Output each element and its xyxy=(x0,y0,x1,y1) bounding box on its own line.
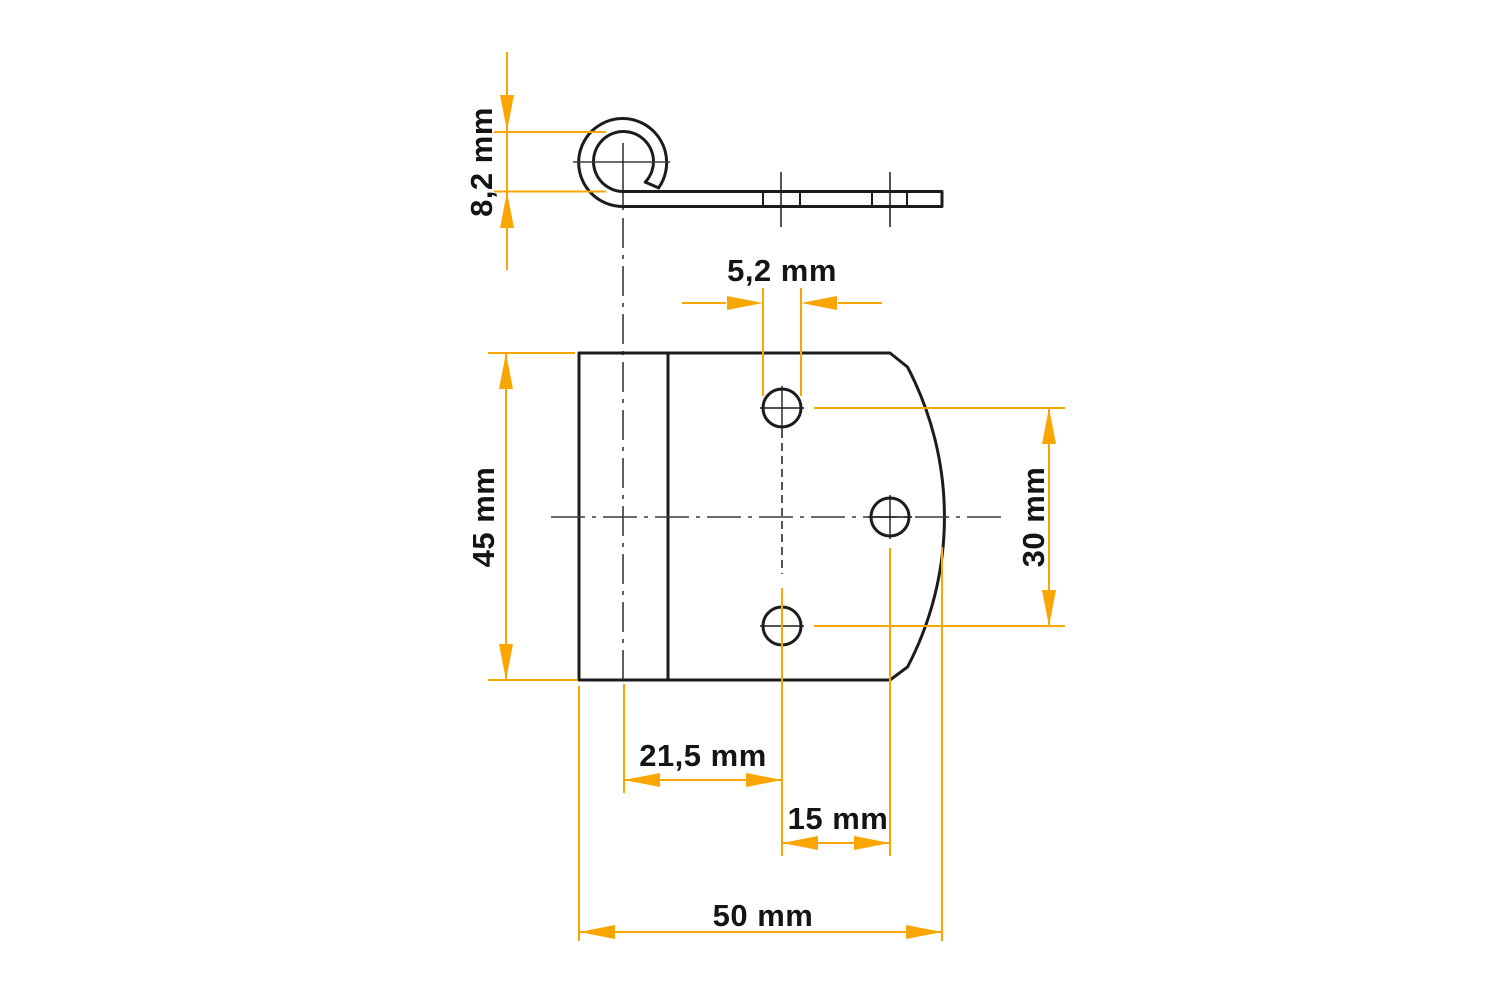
dim-label-5-2: 5,2 mm xyxy=(727,253,837,288)
side-profile-view xyxy=(573,119,942,227)
arrow-right-icon xyxy=(854,836,890,850)
arrow-right-icon xyxy=(906,925,942,939)
arrow-left-icon xyxy=(579,925,615,939)
dim-label-21-5: 21,5 mm xyxy=(639,738,767,773)
dim-label-30: 30 mm xyxy=(1016,467,1051,568)
arrow-left-icon xyxy=(624,773,660,787)
front-view xyxy=(551,353,1003,680)
arrow-left-icon xyxy=(782,836,818,850)
dimension-hole-span-horizontal: 15 mm xyxy=(782,548,890,856)
dim-label-15: 15 mm xyxy=(788,801,889,836)
arrow-up-icon xyxy=(1042,408,1056,444)
edge-view-hole-silhouettes xyxy=(763,192,907,207)
hole-top xyxy=(760,386,804,430)
dim-label-45: 45 mm xyxy=(466,467,501,568)
arrow-right-icon xyxy=(746,773,782,787)
edge-view-hole-centermarks xyxy=(781,172,890,227)
technical-drawing-canvas: 8,2 mm 5,2 mm 45 mm 30 mm 21,5 mm xyxy=(0,0,1500,1000)
sheet-end-cut xyxy=(645,182,658,188)
hole-middle xyxy=(868,495,912,539)
dim-label-8-2: 8,2 mm xyxy=(464,107,499,217)
dimension-bend-to-hole: 21,5 mm xyxy=(624,588,782,856)
arrow-left-icon xyxy=(801,296,837,310)
arrow-up-icon xyxy=(499,353,513,389)
arrow-right-icon xyxy=(727,296,763,310)
arrow-down-icon xyxy=(1042,590,1056,626)
dimension-hole-diameter: 5,2 mm xyxy=(682,253,882,396)
arrow-up-icon xyxy=(500,192,514,228)
dim-label-50: 50 mm xyxy=(713,898,814,933)
drawing-svg: 8,2 mm 5,2 mm 45 mm 30 mm 21,5 mm xyxy=(0,0,1500,1000)
arrow-down-icon xyxy=(500,95,514,131)
arrow-down-icon xyxy=(499,644,513,680)
dimension-curl-opening: 8,2 mm xyxy=(464,52,606,270)
